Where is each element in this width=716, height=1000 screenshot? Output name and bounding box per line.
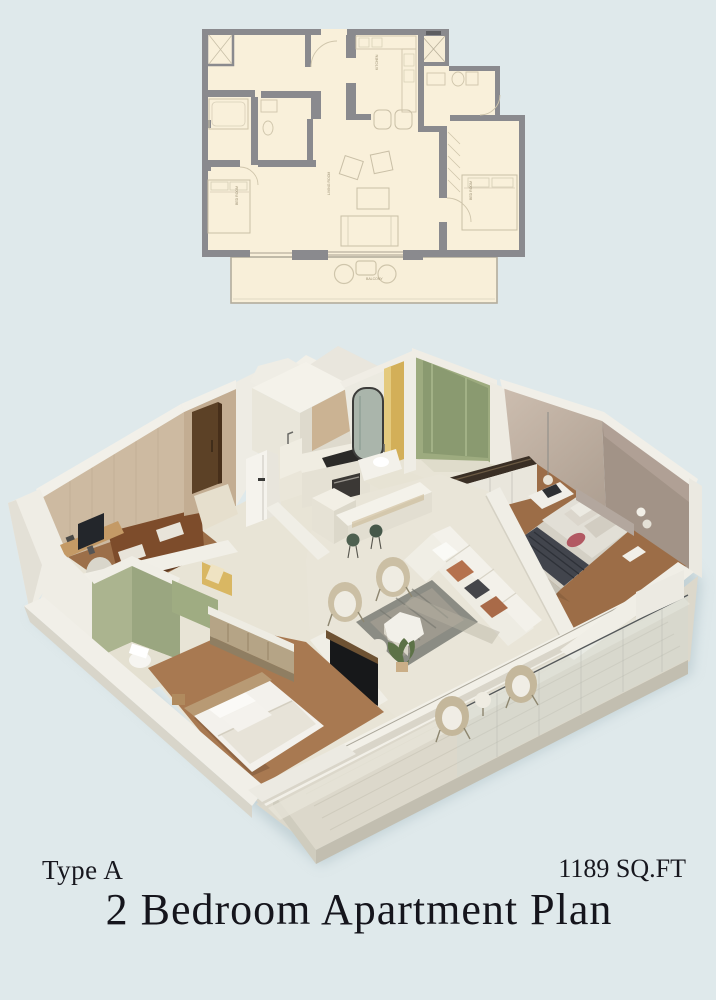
svg-text:1189 SQ.FT: 1189 SQ.FT	[558, 854, 686, 883]
svg-text:Type A: Type A	[42, 855, 123, 885]
svg-text:KITCHEN: KITCHEN	[375, 54, 379, 70]
svg-text:BED ROOM: BED ROOM	[469, 181, 473, 200]
svg-text:LIVING ROOM: LIVING ROOM	[327, 172, 331, 195]
svg-text:BED ROOM: BED ROOM	[235, 186, 239, 205]
svg-text:BALCONY: BALCONY	[366, 277, 383, 281]
svg-text:2 Bedroom Apartment Plan: 2 Bedroom Apartment Plan	[106, 885, 613, 934]
